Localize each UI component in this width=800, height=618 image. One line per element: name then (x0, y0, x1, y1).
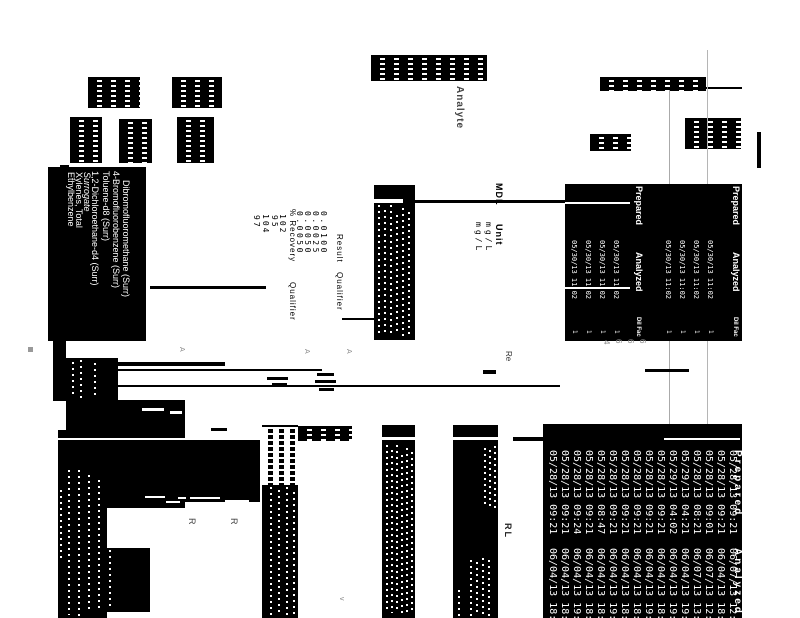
footnote-mark: 6 (626, 339, 634, 343)
garbled-line (706, 87, 742, 89)
unit-value: mg/L (484, 222, 492, 253)
garble-dashes (378, 205, 380, 335)
analyzed-date: 06/04/13 18:45 (559, 548, 569, 618)
analyzed-date: 05/30/13 11:02 (612, 240, 619, 299)
garbled-block (119, 119, 152, 163)
mark (267, 377, 288, 380)
garble-dashes (489, 450, 491, 508)
rule-line (403, 200, 565, 203)
result-value: 0.0100 (319, 211, 327, 255)
garble-dashes (384, 210, 386, 335)
garble-dashes (402, 208, 404, 336)
analyzed-date: 06/04/13 19:10 (667, 548, 677, 618)
re-label: Re (504, 351, 512, 361)
garble-dashes (278, 490, 280, 615)
garble-dashes (94, 363, 96, 396)
garbled-block (371, 55, 487, 81)
dilution-factor: 1 (571, 330, 577, 334)
dilution-factor: 1 (585, 330, 591, 334)
scan-line (374, 199, 403, 203)
analyzed-date: 06/04/13 18:45 (631, 548, 641, 618)
rule-line (150, 286, 266, 289)
analyzed-date: 05/30/13 11:02 (706, 240, 713, 299)
garble-dashes (78, 470, 80, 618)
qualifier-column-header: Qualifier (335, 272, 343, 311)
bottom-dates-block: Prepared Analyzed 05/28/13 09:2105/28/13… (543, 424, 742, 618)
recovery-value: 95 (270, 215, 278, 229)
recovery-value: 97 (252, 215, 260, 229)
dilution-factor: 1 (613, 330, 619, 334)
prepared-date: 05/28/13 08:21 (691, 450, 701, 534)
footnote-mark: 6 (614, 339, 622, 343)
analyzed-date: 05/30/13 11:02 (570, 240, 577, 299)
garble-mark (145, 496, 165, 498)
mark (28, 347, 33, 352)
prepared-date: 05/28/13 09:21 (655, 450, 665, 534)
prepared-date: 05/28/13 09:21 (727, 450, 737, 534)
analyzed-date: 05/30/13 11:02 (678, 240, 685, 299)
analyzed-date: 06/04/13 18:45 (715, 548, 725, 618)
garble-dashes (391, 450, 393, 613)
garble-dashes (390, 205, 392, 337)
analyte-column-header: Analyte (454, 86, 464, 129)
right-edge-bar (757, 132, 761, 168)
analyzed-date: 05/30/13 11:02 (692, 240, 699, 299)
surrogate-name: 1,2-Dichloroethane-d4 (Surr) (90, 171, 99, 286)
garble-mark (225, 500, 249, 502)
result-value: 0.0050 (303, 211, 311, 255)
garble-dashes (482, 558, 484, 616)
garble-dashes (470, 560, 472, 616)
garble-dashes (411, 452, 413, 612)
garble-dashes (293, 492, 295, 614)
garble-dashes (484, 448, 486, 508)
dilfac-header: Dil Fac (635, 317, 641, 337)
garble-dashes (270, 487, 272, 615)
rl-column-header: RL (503, 523, 512, 539)
prepared-date: 05/28/13 09:21 (607, 450, 617, 534)
unit-column-header: Unit (494, 224, 503, 246)
analyzed-date: 05/30/13 11:02 (584, 240, 591, 299)
garble-mark (166, 501, 180, 503)
stray-mark: A (178, 347, 185, 352)
prepared-date: 05/28/13 09:21 (619, 450, 629, 534)
garble-dashes (458, 590, 460, 616)
garbled-block (298, 426, 352, 441)
garble-dashes (88, 475, 90, 613)
garble-dashes (494, 446, 496, 508)
garbled-block (600, 77, 706, 91)
analyzed-date: 06/07/13 12:02 (727, 548, 737, 618)
prepared-date: 05/29/13 04:21 (679, 450, 689, 534)
result-column-header: Result (335, 234, 343, 263)
analyzed-date: 06/04/13 19:13 (571, 548, 581, 618)
surrogate-name: 4-Bromofluorobenzene (Surr) (111, 171, 120, 288)
garbled-block (262, 427, 298, 485)
garble-dashes (406, 448, 408, 613)
garble-dashes (401, 455, 403, 613)
analyzed-date: 06/04/13 18:45 (655, 548, 665, 618)
scan-line (382, 437, 415, 440)
stray-mark: A (303, 349, 310, 354)
analyzed-date: 06/04/13 19:45 (643, 548, 653, 618)
analyte-names-block: Ethylbenzene Xylenes, Total Surrogate 1,… (48, 167, 146, 341)
dilution-factor: 1 (665, 330, 671, 334)
prepared-date: 05/28/13 09:21 (643, 450, 653, 534)
rule-line (513, 437, 545, 441)
rule-line (483, 370, 496, 374)
prepared-date: 05/28/13 09:21 (715, 450, 725, 534)
garble-dashes (488, 560, 490, 616)
garble-dashes (109, 550, 111, 608)
rule-line (342, 318, 375, 320)
analyzed-date: 06/04/13 18:18 (595, 548, 605, 618)
dilution-factor: 1 (707, 330, 713, 334)
analyzed-date: 06/04/13 19:45 (679, 548, 689, 618)
analyzed-header: Analyzed (731, 252, 740, 292)
garble-dashes (286, 487, 288, 615)
garbled-block (177, 117, 214, 163)
analyzed-date: 05/30/13 11:02 (598, 240, 605, 299)
garble-mark (178, 497, 186, 499)
recovery-value: 102 (278, 214, 286, 234)
garble-dashes (80, 360, 82, 398)
upper-dates-block: Prepared Analyzed Dil Fac Prepared Analy… (565, 184, 742, 341)
dilution-factor: 1 (599, 330, 605, 334)
dilution-factor: 1 (693, 330, 699, 334)
scanned-report-page: Analyte MDL Unit mg/L mg/L Result Qualif… (0, 0, 800, 618)
mark (317, 373, 334, 376)
qualifier-flag: R (229, 518, 238, 525)
garble-mark (142, 408, 164, 411)
rule-line (90, 385, 560, 387)
qualifier-flag: R (187, 518, 196, 525)
garble-dashes (396, 445, 398, 613)
garble-mark (190, 497, 220, 499)
surrogate-name: Toluene-d8 (Surr) (101, 171, 110, 241)
scan-line (453, 437, 498, 440)
stray-mark: A (345, 349, 352, 354)
prepared-date: 05/28/13 09:21 (583, 450, 593, 534)
garble-dashes (60, 490, 62, 560)
prepared-date: 05/28/13 09:21 (547, 450, 557, 534)
garbled-block (590, 134, 631, 151)
analyzed-header: Analyzed (634, 252, 643, 292)
stray-mark: v (338, 597, 345, 601)
analyzed-date: 06/07/13 12:45 (703, 548, 713, 618)
footnote-mark: 4 (602, 340, 610, 344)
garble-dashes (408, 212, 410, 336)
recovery-value: 104 (261, 214, 269, 234)
garble-dashes (386, 445, 388, 613)
analyzed-date: 06/04/13 18:45 (619, 548, 629, 618)
rule-line (645, 369, 689, 372)
garble-dashes (68, 470, 70, 615)
result-value: 0.0050 (295, 211, 303, 255)
garbled-block (172, 77, 222, 108)
garbled-mass (66, 400, 185, 430)
prepared-date: 05/28/13 09:21 (631, 450, 641, 534)
garble-dashes (72, 362, 74, 396)
prepared-date: 05/28/13 09:21 (559, 450, 569, 534)
prepared-date: 05/29/13 04:02 (667, 450, 677, 534)
prepared-header: Prepared (634, 186, 643, 225)
mark (60, 165, 69, 172)
mark (272, 383, 287, 385)
prepared-date: 05/28/13 09:01 (703, 450, 713, 534)
scan-line (565, 202, 630, 204)
analyzed-date: 05/30/13 11:02 (664, 240, 671, 299)
unit-value: mg/L (474, 222, 482, 253)
mark (319, 388, 334, 391)
garbled-block (88, 77, 140, 108)
mark (211, 428, 227, 431)
garbled-mass (107, 548, 150, 612)
surrogate-name: Dibromofluoromethane (Surr) (121, 180, 130, 297)
garble-mark (170, 411, 182, 414)
garbled-mass (183, 440, 260, 502)
dilfac-header: Dil Fac (732, 317, 738, 337)
analyzed-date: 06/07/13 13:45 (691, 548, 701, 618)
prepared-date: 05/28/13 08:47 (595, 450, 605, 534)
prepared-header: Prepared (731, 186, 740, 225)
prepared-date: 05/28/13 09:24 (571, 450, 581, 534)
footnote-mark: 6 (638, 339, 646, 343)
analyzed-date: 06/04/13 19:45 (607, 548, 617, 618)
analyzed-date: 06/04/13 18:45 (547, 548, 557, 618)
garbled-block (70, 117, 102, 163)
result-value: 0.0025 (311, 211, 319, 255)
garble-dashes (476, 562, 478, 616)
garble-dashes (98, 480, 100, 612)
analyzed-date: 06/04/13 18:45 (583, 548, 593, 618)
scan-line (664, 438, 740, 440)
garble-dashes (396, 215, 398, 335)
scan-line (58, 438, 185, 440)
mark (315, 380, 336, 383)
garbled-block (685, 118, 741, 149)
recovery-qualifier-header: Qualifier (288, 282, 296, 321)
dilution-factor: 1 (679, 330, 685, 334)
